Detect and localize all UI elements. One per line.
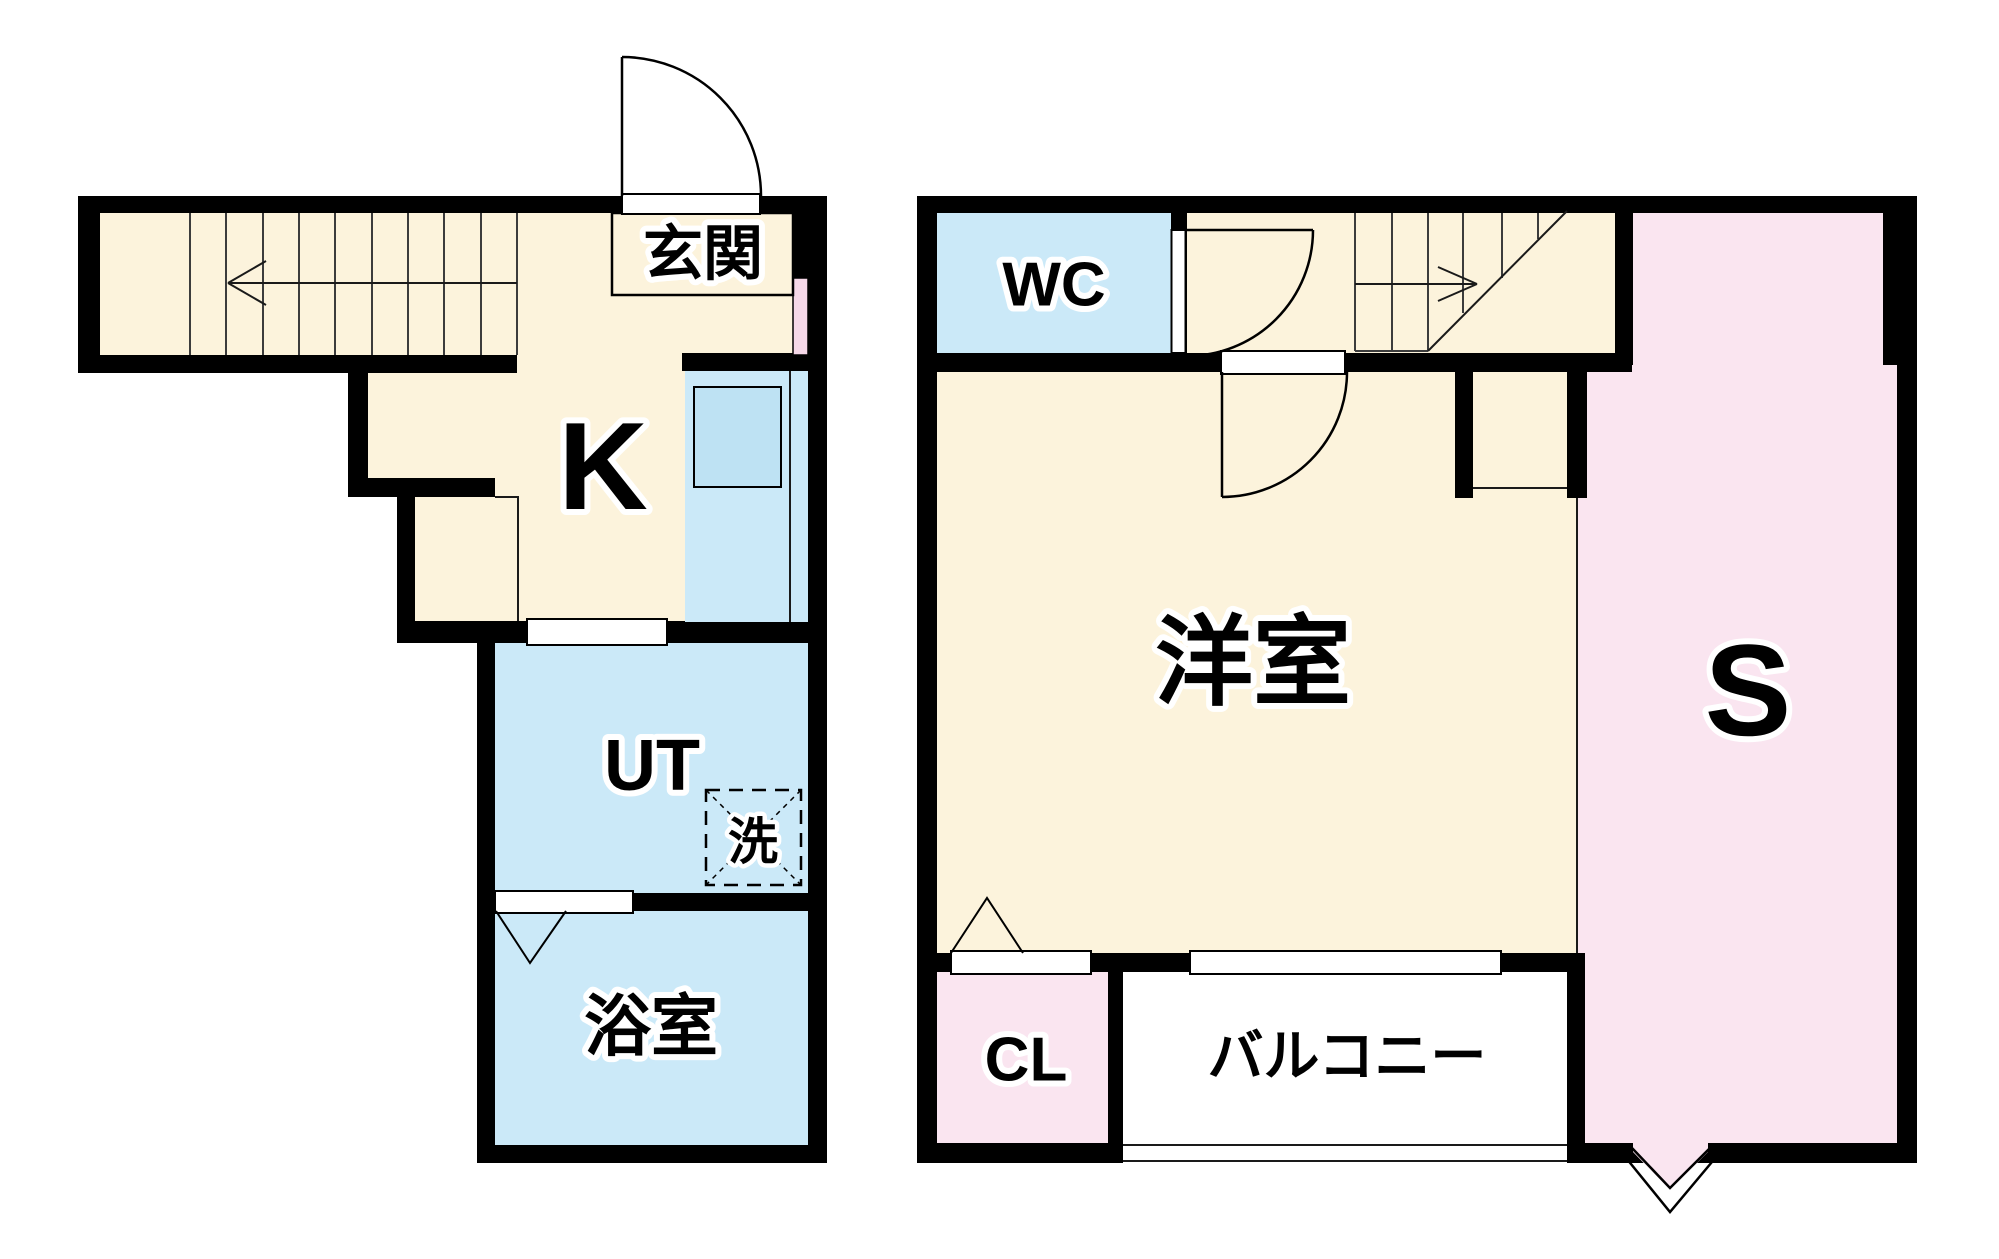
window-strip xyxy=(793,278,808,355)
label-entrance: 玄関 xyxy=(643,221,763,288)
entry-threshold xyxy=(622,194,760,214)
opening-toilet-door xyxy=(1172,230,1186,353)
opening-utility-bath xyxy=(495,891,633,913)
floorplan-page: 玄関 K UT 洗 浴室 xyxy=(0,0,1999,1259)
storage-floor-lower xyxy=(1577,498,1897,1143)
label-balcony: バルコニー xyxy=(1208,1025,1487,1088)
label-toilet: WC xyxy=(1002,251,1105,320)
wall-bottom-right xyxy=(1708,1143,1917,1163)
floor2-plan: WC 洋室 S CL バルコニー xyxy=(917,196,1917,1212)
label-western-room: 洋室 xyxy=(1155,607,1351,717)
wall-bottom-left xyxy=(917,1143,1123,1163)
label-kitchen: K xyxy=(558,398,648,536)
wall-stub-b xyxy=(1567,372,1587,498)
label-washer: 洗 xyxy=(728,814,778,870)
entry-door-arc xyxy=(622,57,761,196)
storage-floor-mid xyxy=(1587,365,1897,498)
storage-floor-upper xyxy=(1633,213,1883,365)
wall-stub-a xyxy=(1455,372,1473,498)
wall-balcony-top-right xyxy=(1501,953,1585,972)
wall-step xyxy=(348,478,495,497)
kitchen-sink xyxy=(694,387,781,487)
entry-door xyxy=(622,57,761,214)
opening-room-door xyxy=(1221,351,1345,374)
opening-kitchen-utility xyxy=(527,619,667,645)
label-utility: UT xyxy=(604,726,700,806)
floorplan-drawing: 玄関 K UT 洗 浴室 xyxy=(0,0,1999,1259)
label-closet: CL xyxy=(985,1026,1068,1095)
wall-closet-right xyxy=(1108,972,1123,1163)
wall-under-stairs xyxy=(78,355,517,373)
label-storage: S xyxy=(1705,617,1792,763)
floor1-plan: 玄関 K UT 洗 浴室 xyxy=(78,57,827,1163)
opening-closet xyxy=(951,951,1091,974)
label-bathroom: 浴室 xyxy=(584,990,718,1065)
window-balcony xyxy=(1190,951,1501,974)
wall-stairs-storage xyxy=(1615,213,1633,365)
wall-balcony-right xyxy=(1567,953,1585,1146)
